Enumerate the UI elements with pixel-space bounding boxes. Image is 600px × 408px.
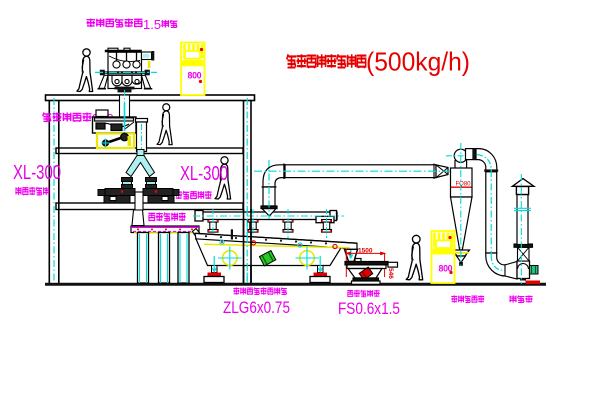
svg-text:XL-300: XL-300 [180, 163, 228, 185]
svg-text:1500: 1500 [358, 248, 373, 255]
svg-text:800: 800 [188, 71, 202, 81]
svg-text:ZLG6x0.75: ZLG6x0.75 [223, 298, 290, 317]
svg-text:FS0.6x1.5: FS0.6x1.5 [338, 299, 400, 318]
svg-text:(500kg/h): (500kg/h) [366, 47, 470, 77]
svg-text:1.5: 1.5 [143, 17, 161, 32]
svg-text:546: 546 [387, 268, 394, 279]
svg-text:XL-300: XL-300 [13, 162, 61, 184]
